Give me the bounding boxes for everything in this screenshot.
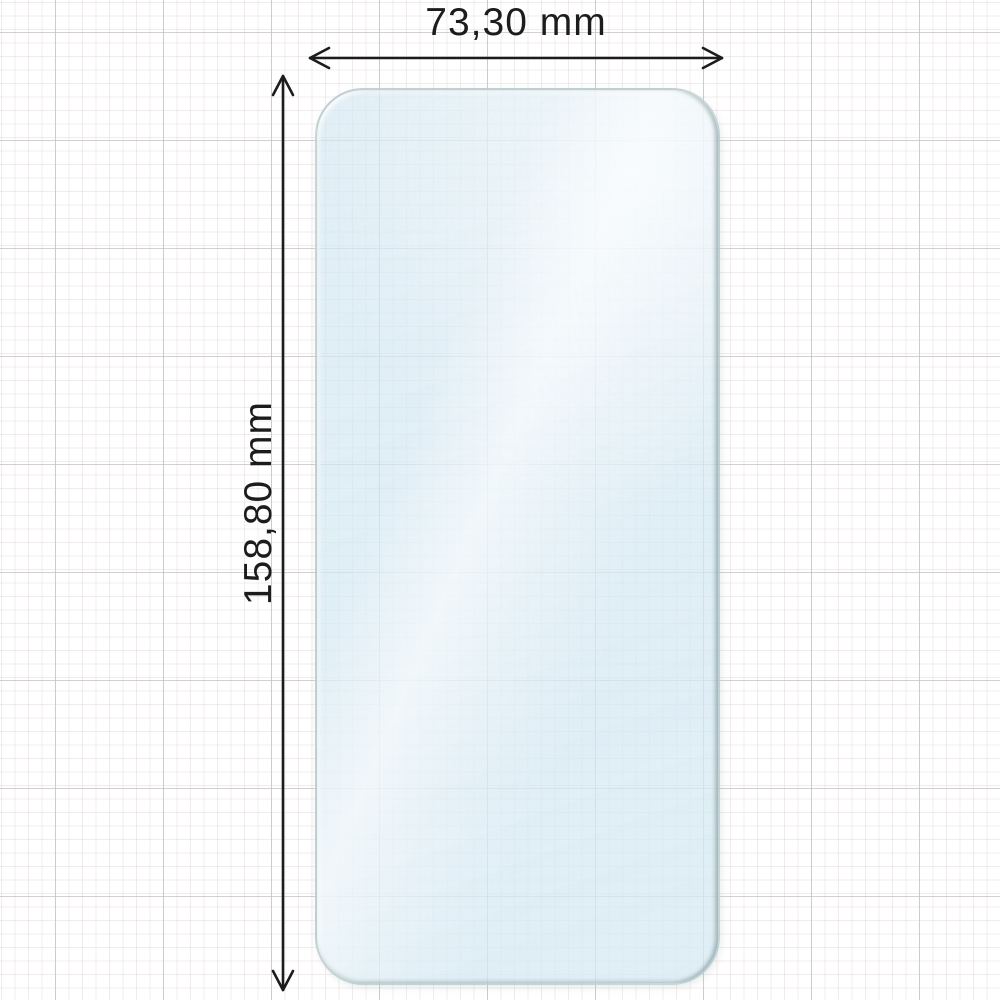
- diagram-canvas: 73,30 mm 158,80 mm: [0, 0, 1000, 1000]
- width-dimension-arrow: [301, 43, 731, 73]
- width-dimension-label: 73,30 mm: [266, 0, 766, 46]
- screen-protector-film: [315, 88, 720, 985]
- height-dimension-label: 158,80 mm: [236, 343, 282, 663]
